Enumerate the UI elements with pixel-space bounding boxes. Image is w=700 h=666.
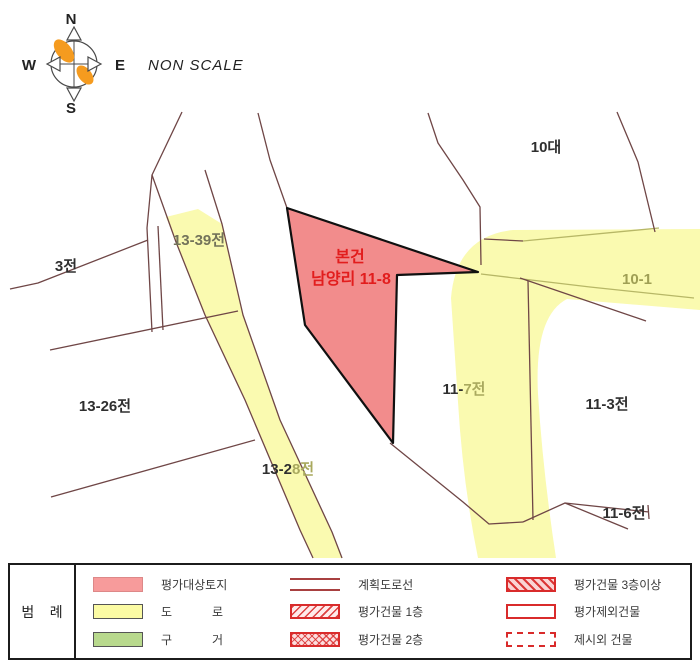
legend-item-ditch: 구 거 <box>93 631 290 647</box>
legend-item-building-1f: 평가건물 1층 <box>290 604 506 620</box>
legend-items: 평가대상토지 도 로 구 거 계획도로선 <box>76 565 690 658</box>
parcel-label-11-7: 11-7전 <box>442 381 485 398</box>
parcel-label-11-3: 11-3전 <box>586 396 629 413</box>
legend-swatch-building-1f <box>290 604 340 619</box>
boundary-line-subject-approach <box>258 113 287 208</box>
non-scale-note: NON SCALE <box>148 57 244 74</box>
legend-label-ditch: 구 거 <box>161 631 223 648</box>
legend-label-building-3f-plus: 평가건물 3층이상 <box>574 576 661 593</box>
legend-column-1: 평가대상토지 도 로 구 거 <box>93 576 290 647</box>
boundary-line-left-ridge-2 <box>158 226 163 330</box>
legend-label-building-2f: 평가건물 2층 <box>358 631 423 648</box>
parcel-label-11-7-part2: 7전 <box>463 381 485 398</box>
legend-item-road: 도 로 <box>93 604 290 620</box>
legend-item-building-2f: 평가건물 2층 <box>290 631 506 647</box>
planned-road-line <box>290 578 340 580</box>
parcel-label-13-28: 13-28전 <box>262 461 314 478</box>
road-right <box>451 229 700 558</box>
legend-swatch-building-3f-plus <box>506 577 556 592</box>
boundary-line-3jeon-bottom <box>50 311 238 350</box>
legend-swatch-road <box>93 604 143 619</box>
parcel-label-13-28-part2: 8전 <box>292 461 314 478</box>
boundary-line-3jeon-top <box>10 240 148 289</box>
parcel-label-13-39: 13-39전 <box>173 232 225 249</box>
boundary-line-1326-bottom <box>51 440 255 497</box>
legend-column-3: 평가건물 3층이상 평가제외건물 제시외 건물 <box>506 576 690 647</box>
legend-item-planned-road: 계획도로선 <box>290 576 506 592</box>
subject-label-line2: 남양리 11-8 <box>311 270 391 288</box>
legend-item-building-3f-plus: 평가건물 3층이상 <box>506 576 690 592</box>
legend-label-unlisted-building: 제시외 건물 <box>574 631 633 648</box>
cadastral-map-page: N W E S NON SCALE <box>0 0 700 666</box>
legend-swatch-subject-land <box>93 577 143 592</box>
map-canvas: N W E S NON SCALE <box>0 0 700 562</box>
boundary-line-10dae-west <box>428 113 481 265</box>
legend-label-road: 도 로 <box>161 603 223 620</box>
legend-label-subject-land: 평가대상토지 <box>161 576 227 593</box>
parcel-label-10dae: 10대 <box>531 139 562 156</box>
compass-arrow-east-icon <box>88 57 101 71</box>
legend-item-unlisted-building: 제시외 건물 <box>506 631 690 647</box>
compass-label-n: N <box>66 11 77 28</box>
compass-arrow-west-icon <box>47 57 60 71</box>
legend-title: 범 례 <box>10 565 76 658</box>
parcel-label-11-7-part1: 11- <box>442 381 463 398</box>
legend-label-excluded-building: 평가제외건물 <box>574 603 640 620</box>
legend-label-planned-road: 계획도로선 <box>358 576 413 593</box>
legend-item-subject-land: 평가대상토지 <box>93 576 290 592</box>
boundary-line-10dae-east <box>617 112 655 232</box>
legend-swatch-ditch <box>93 632 143 647</box>
planned-road-line <box>290 589 340 591</box>
legend-symbol-planned-road-lines <box>290 577 340 592</box>
legend-box: 범 례 평가대상토지 도 로 구 거 <box>8 563 692 660</box>
legend-item-excluded-building: 평가제외건물 <box>506 604 690 620</box>
parcel-label-3jeon: 3전 <box>55 258 77 275</box>
compass-label-e: E <box>115 57 125 74</box>
legend-swatch-excluded-building <box>506 604 556 619</box>
parcel-label-10-1: 10-1 <box>622 271 652 288</box>
parcel-label-13-28-part1: 13-2 <box>262 461 292 478</box>
compass-arrow-north-icon <box>67 27 81 40</box>
compass-label-w: W <box>22 57 37 74</box>
compass-label-s: S <box>66 100 76 117</box>
legend-swatch-unlisted-building <box>506 632 556 647</box>
parcel-label-13-26: 13-26전 <box>79 398 131 415</box>
parcel-label-11-6: 11-6전 <box>603 505 646 522</box>
subject-parcel-shape <box>287 208 478 443</box>
subject-label-line1: 본건 <box>335 248 364 266</box>
legend-column-2: 계획도로선 평가건물 1층 평가건물 2층 <box>290 576 506 647</box>
legend-label-building-1f: 평가건물 1층 <box>358 603 423 620</box>
legend-swatch-building-2f <box>290 632 340 647</box>
compass-rose: N W E S <box>22 11 125 117</box>
